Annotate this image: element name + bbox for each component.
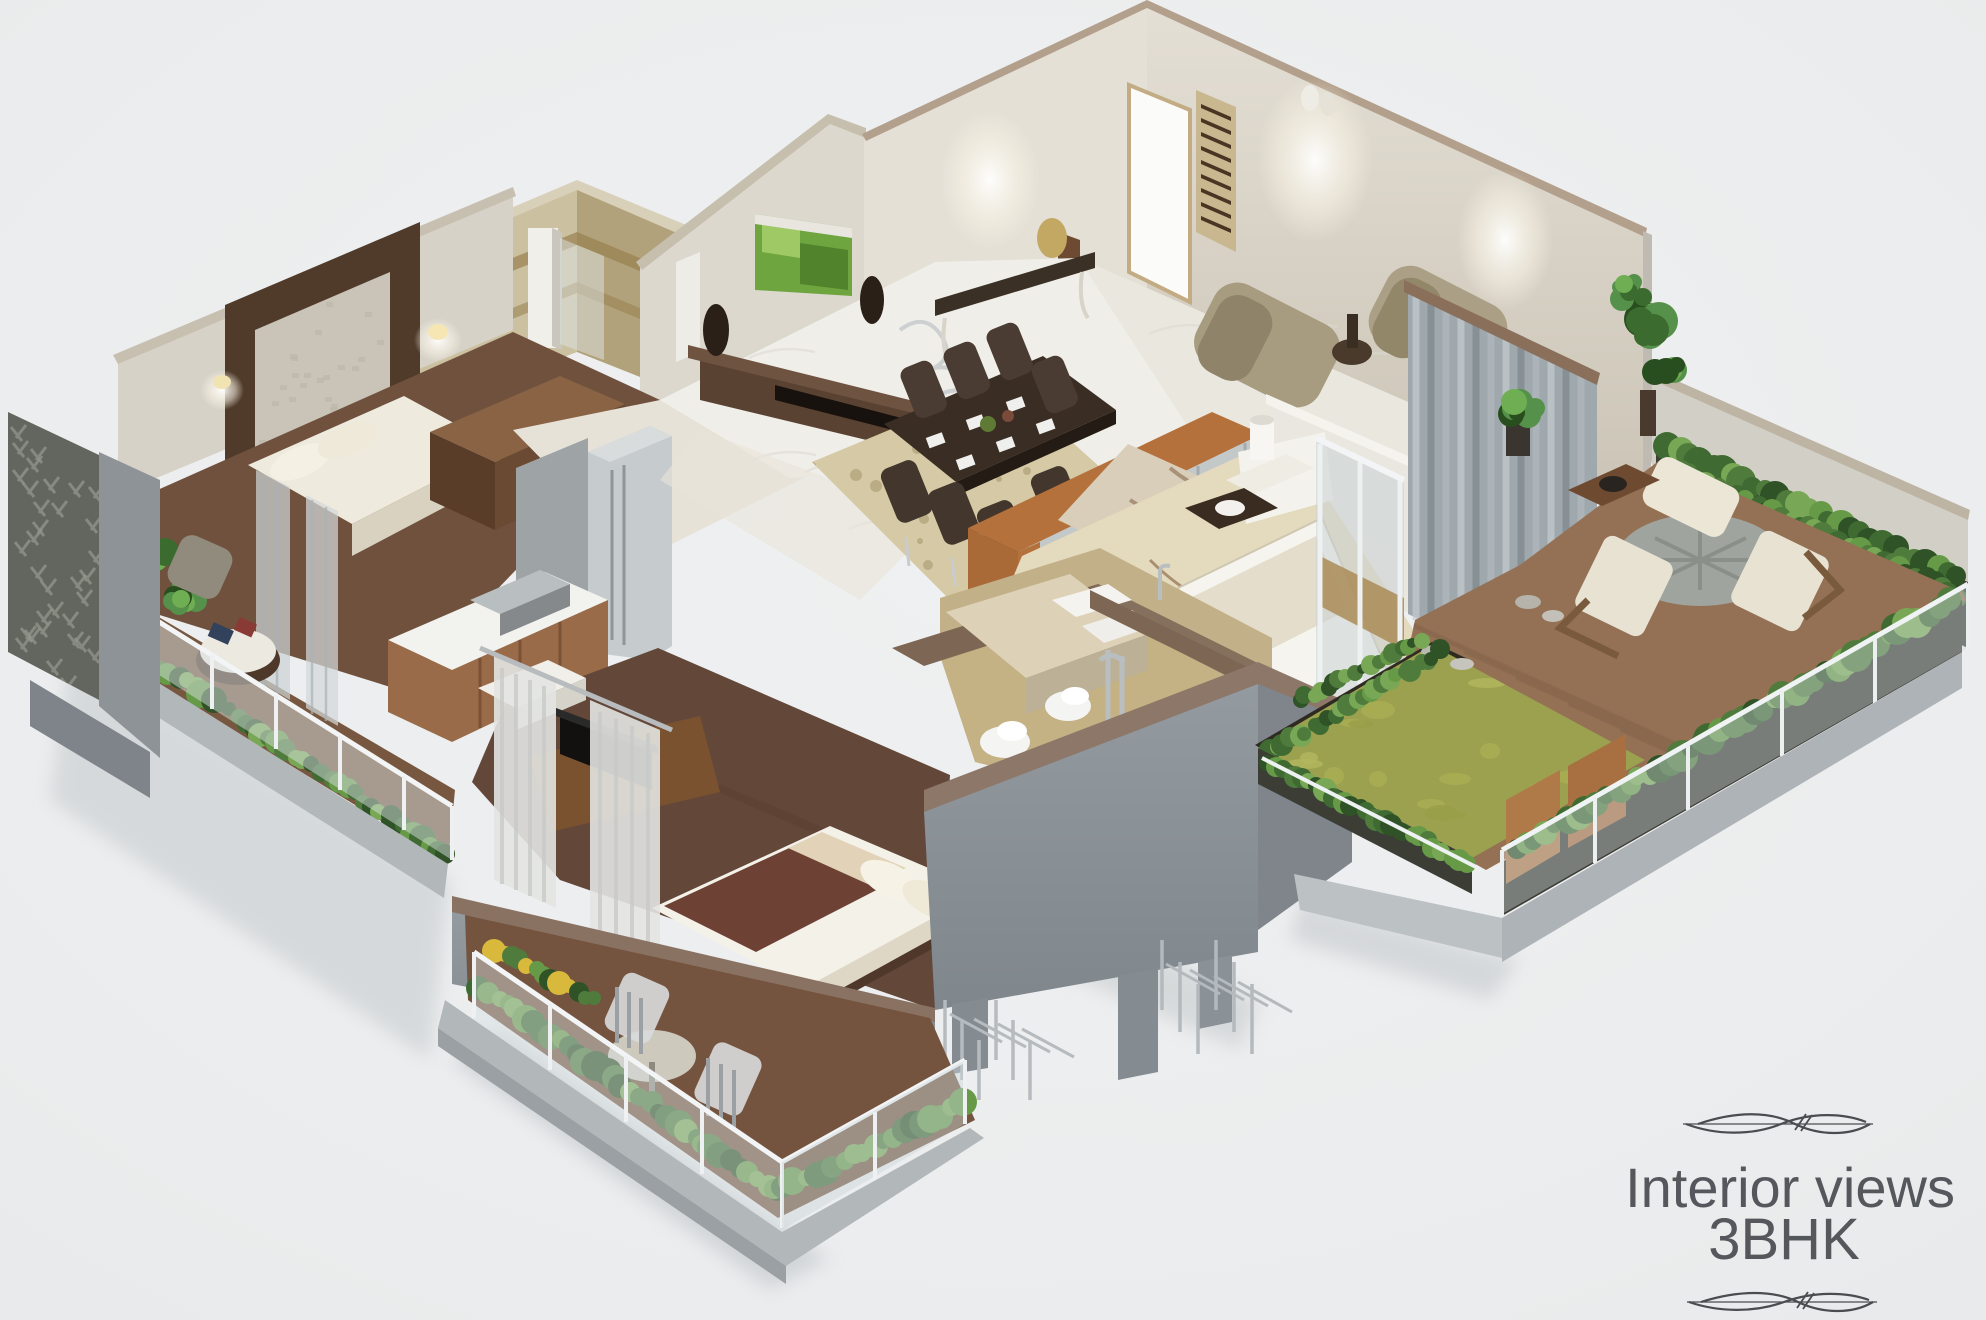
- svg-text:3BHK: 3BHK: [1708, 1207, 1860, 1272]
